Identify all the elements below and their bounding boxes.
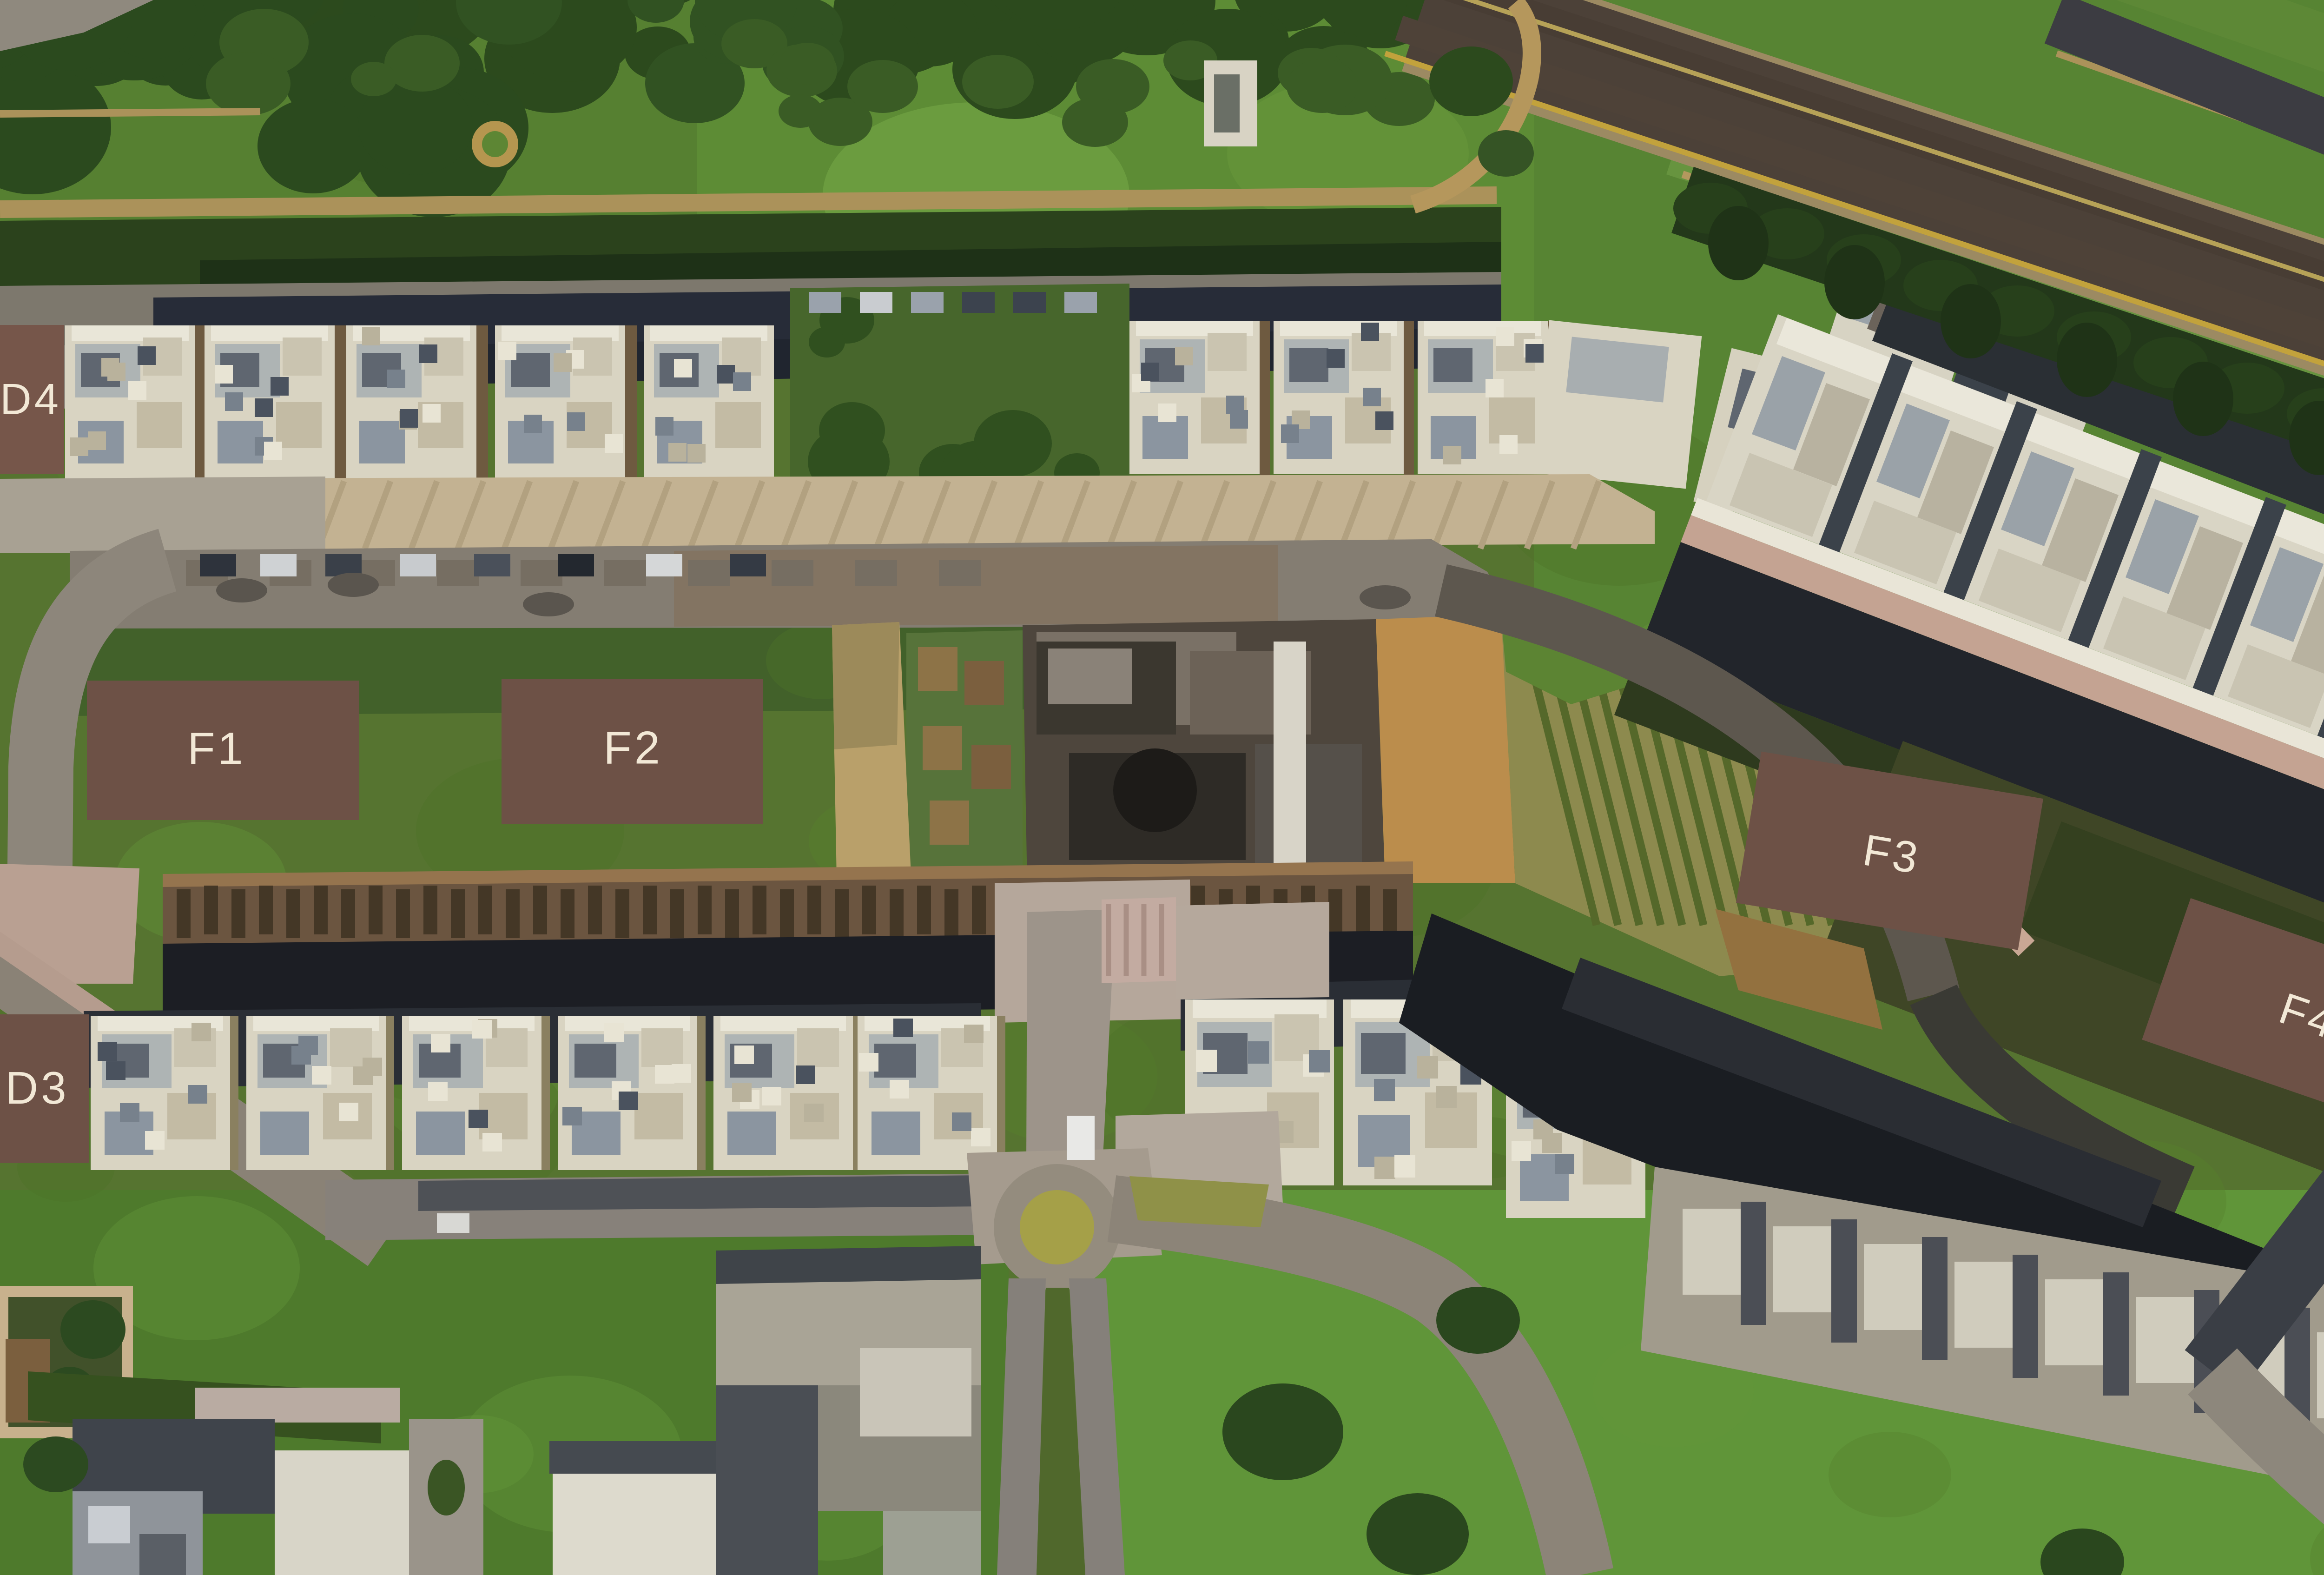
svg-text:F3: F3 [1860, 826, 1924, 884]
svg-text:D4: D4 [0, 375, 61, 424]
svg-text:F1: F1 [187, 723, 245, 774]
svg-text:D3: D3 [5, 1062, 69, 1113]
svg-text:F2: F2 [603, 722, 663, 774]
